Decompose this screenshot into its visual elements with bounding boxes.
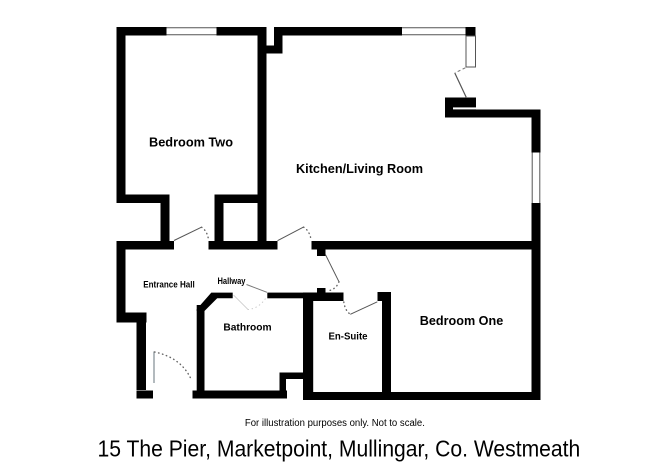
svg-text:Bedroom Two: Bedroom Two [149,135,233,150]
svg-text:Bedroom One: Bedroom One [420,313,504,328]
svg-text:Entrance Hall: Entrance Hall [143,279,195,290]
svg-text:Bathroom: Bathroom [223,322,271,334]
svg-text:15 The Pier, Marketpoint, Mull: 15 The Pier, Marketpoint, Mullingar, Co.… [98,436,581,462]
svg-text:Kitchen/Living Room: Kitchen/Living Room [296,161,423,176]
svg-text:En-Suite: En-Suite [328,331,367,343]
svg-text:For illustration purposes only: For illustration purposes only. Not to s… [245,418,425,429]
svg-text:Hallway: Hallway [218,276,246,286]
